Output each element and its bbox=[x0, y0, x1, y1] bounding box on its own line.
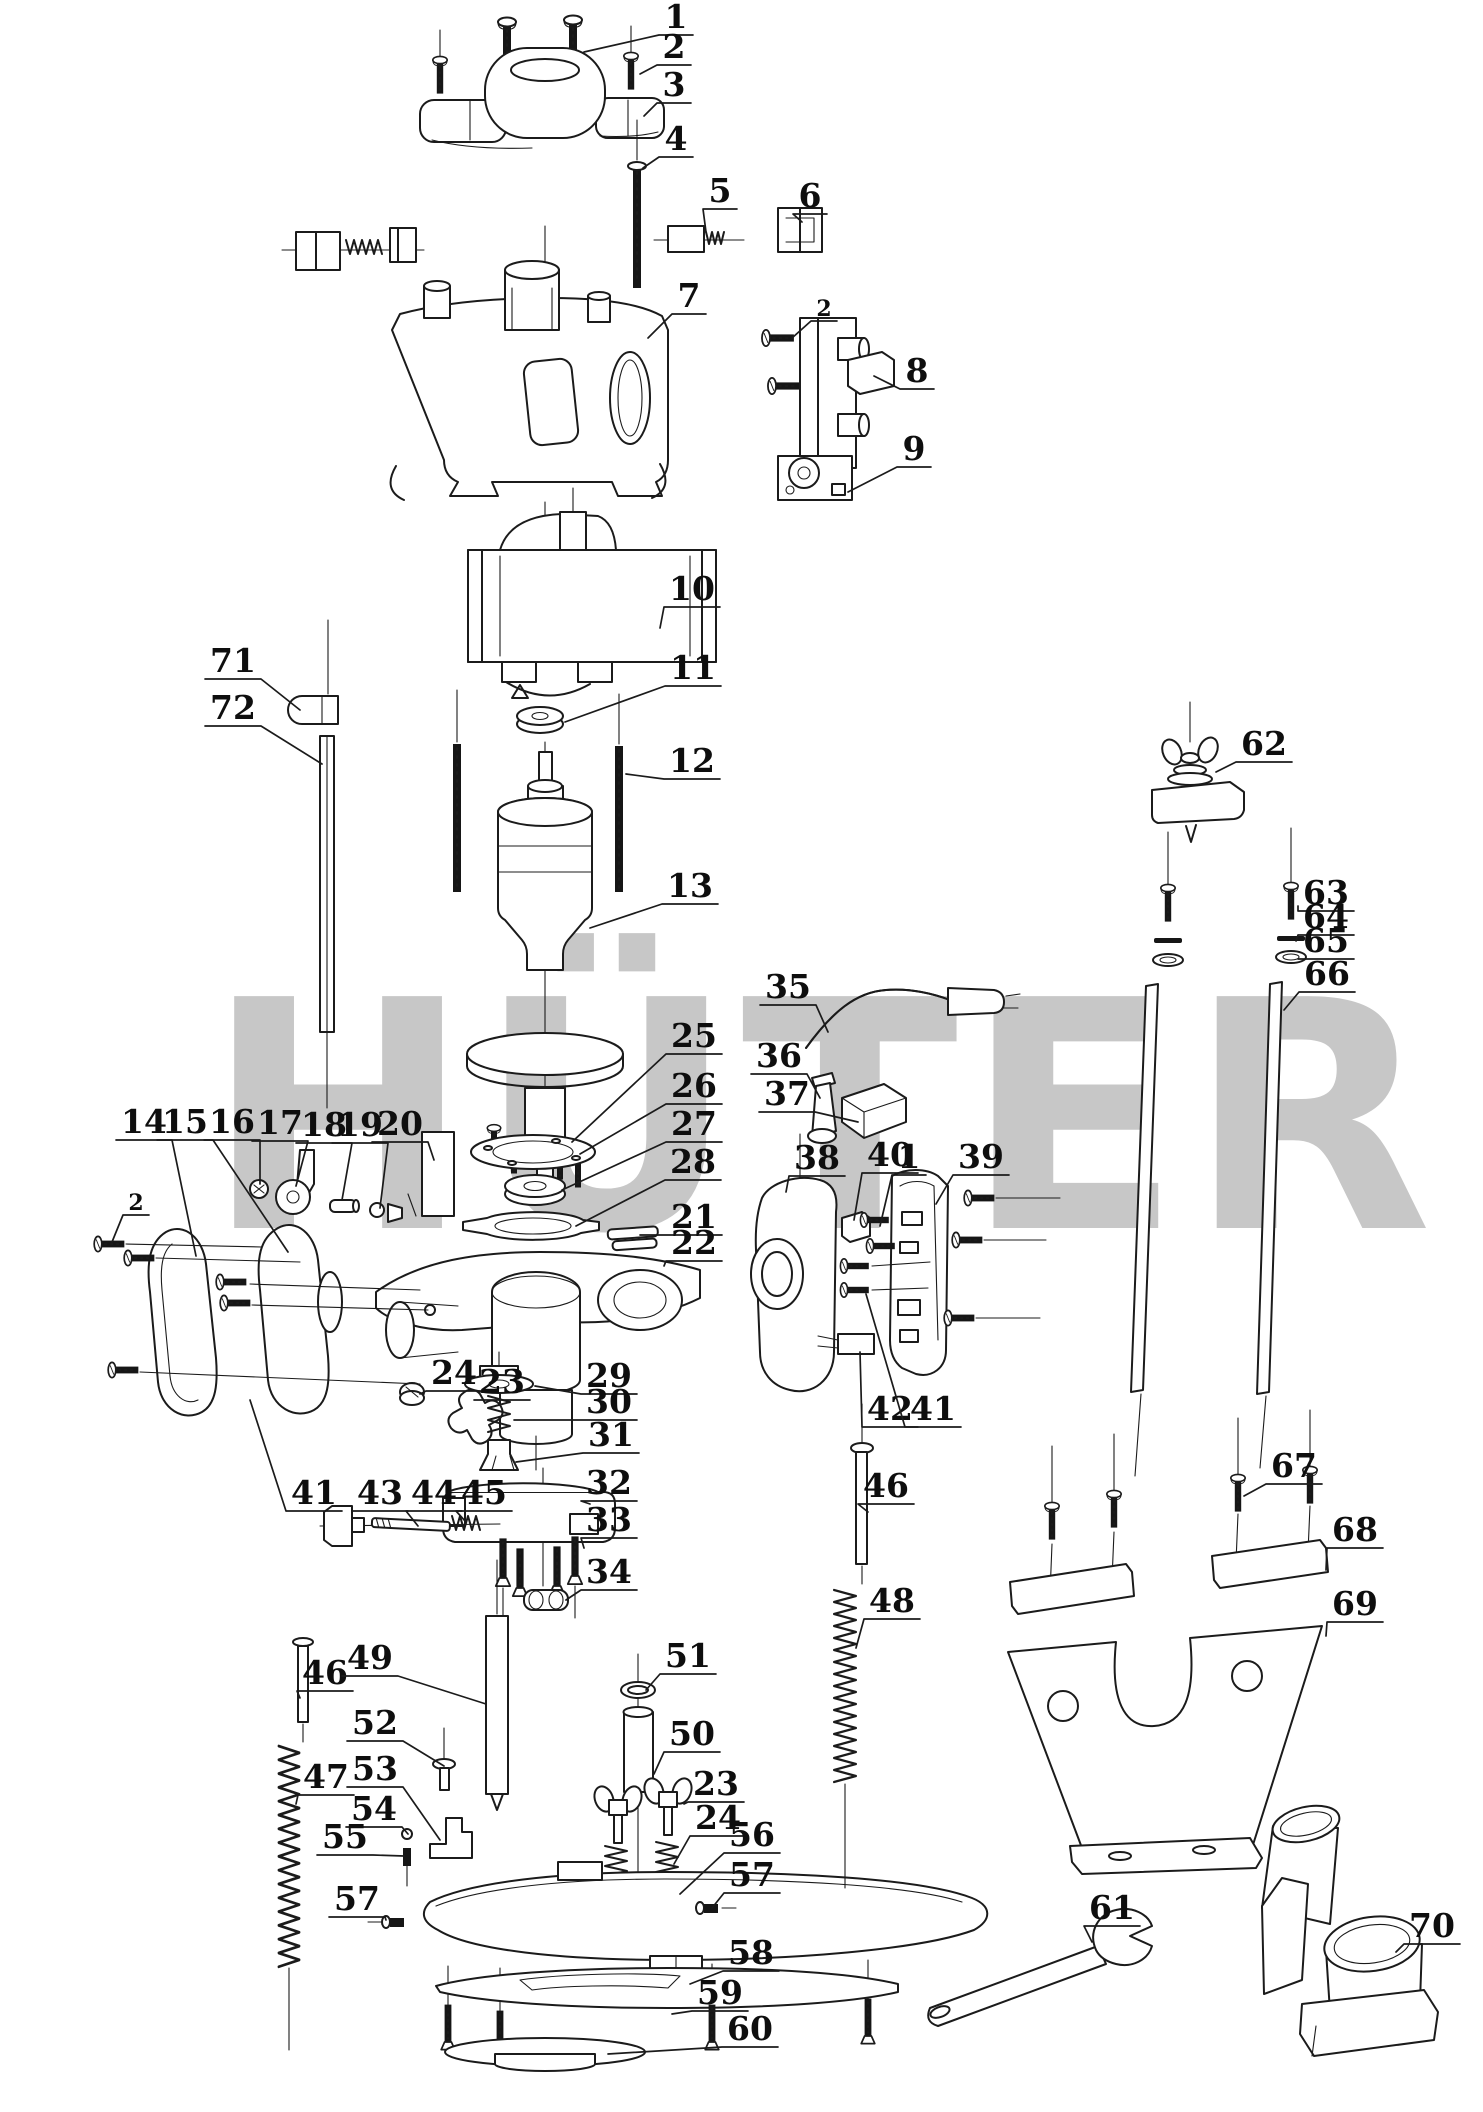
part-motor-housing-7 bbox=[391, 226, 668, 500]
part-label-1-52: 1 bbox=[898, 1137, 921, 1176]
part-label-12-12: 12 bbox=[669, 741, 715, 780]
part-label-24-38: 24 bbox=[431, 1353, 477, 1392]
part-label-3-2: 3 bbox=[663, 65, 686, 104]
part-label-4-3: 4 bbox=[665, 119, 688, 158]
part-long-screw-4 bbox=[628, 120, 646, 288]
part-label-6-5: 6 bbox=[799, 176, 822, 215]
leader-line-11-11 bbox=[565, 686, 721, 722]
leader-line-31-42 bbox=[516, 1453, 639, 1462]
part-label-46-73: 46 bbox=[863, 1466, 909, 1505]
part-label-44-48: 44 bbox=[411, 1473, 457, 1512]
part-label-48-74: 48 bbox=[869, 1581, 915, 1620]
part-label-15-31: 15 bbox=[162, 1102, 208, 1141]
part-label-51-64: 51 bbox=[665, 1636, 711, 1675]
leader-line-9-9 bbox=[848, 467, 931, 492]
part-label-62-16: 62 bbox=[1241, 724, 1287, 763]
part-label-39-53: 39 bbox=[958, 1137, 1004, 1176]
part-label-70-79: 70 bbox=[1409, 1906, 1455, 1945]
part-label-41-55: 41 bbox=[910, 1389, 956, 1428]
part-label-7-6: 7 bbox=[678, 276, 701, 315]
part-label-38-50: 38 bbox=[794, 1138, 840, 1177]
leader-line-62-16 bbox=[1216, 762, 1292, 772]
part-label-22-29: 22 bbox=[671, 1223, 717, 1262]
part-label-55-62: 55 bbox=[322, 1817, 368, 1856]
leader-line-13-13 bbox=[590, 904, 718, 928]
part-label-2-1: 2 bbox=[663, 27, 686, 66]
part-bearing-11 bbox=[517, 707, 563, 733]
part-label-2-37: 2 bbox=[128, 1190, 143, 1216]
part-label-53-60: 53 bbox=[352, 1749, 398, 1788]
part-label-34-45: 34 bbox=[586, 1552, 632, 1591]
part-label-41-46: 41 bbox=[291, 1473, 337, 1512]
leader-line-4-3 bbox=[643, 157, 693, 168]
part-spring-47 bbox=[279, 1746, 300, 2050]
leader-line-5-4 bbox=[703, 209, 737, 232]
part-guide-stop-62 bbox=[1152, 702, 1244, 842]
part-label-47-57: 47 bbox=[303, 1757, 349, 1796]
part-label-17-33: 17 bbox=[257, 1103, 303, 1142]
part-label-9-9: 9 bbox=[903, 429, 926, 468]
part-label-8-8: 8 bbox=[906, 351, 929, 390]
part-clamp-bar-21 bbox=[608, 1226, 659, 1250]
part-label-45-49: 45 bbox=[461, 1473, 507, 1512]
part-label-71-14: 71 bbox=[210, 641, 256, 680]
part-label-23-39: 23 bbox=[479, 1362, 525, 1401]
part-label-58-70: 58 bbox=[728, 1933, 774, 1972]
part-label-28-27: 28 bbox=[670, 1142, 716, 1181]
part-label-61-78: 61 bbox=[1089, 1888, 1135, 1927]
part-label-49-58: 49 bbox=[347, 1638, 393, 1677]
leader-line-48-74 bbox=[856, 1619, 920, 1648]
part-label-2-7: 2 bbox=[816, 296, 831, 322]
part-label-35-21: 35 bbox=[765, 967, 811, 1006]
part-spring-48 bbox=[834, 1590, 856, 1888]
leader-line-69-77 bbox=[1326, 1622, 1383, 1636]
part-switch-plate-8-9 bbox=[762, 318, 894, 500]
part-label-25-24: 25 bbox=[671, 1016, 717, 1055]
part-label-37-23: 37 bbox=[764, 1074, 810, 1113]
diagram-canvas: HÜTER bbox=[0, 0, 1483, 2112]
part-label-20-36: 20 bbox=[377, 1104, 423, 1143]
part-label-32-43: 32 bbox=[586, 1463, 632, 1502]
part-top-cover bbox=[420, 16, 664, 149]
part-label-57-69: 57 bbox=[729, 1855, 775, 1894]
leader-line-51-64 bbox=[646, 1674, 716, 1690]
part-label-36-22: 36 bbox=[756, 1036, 802, 1075]
part-label-67-75: 67 bbox=[1271, 1446, 1317, 1485]
leader-line-34-45 bbox=[566, 1590, 637, 1600]
part-label-66-20: 66 bbox=[1304, 954, 1350, 993]
part-label-72-15: 72 bbox=[210, 688, 256, 727]
part-brush-5 bbox=[654, 226, 744, 252]
part-brush-left bbox=[282, 228, 424, 270]
part-label-60-72: 60 bbox=[727, 2009, 773, 2048]
part-label-57-63: 57 bbox=[334, 1879, 380, 1918]
part-label-14-30: 14 bbox=[121, 1102, 167, 1141]
part-label-5-4: 5 bbox=[709, 171, 732, 210]
part-label-42-54: 42 bbox=[867, 1389, 913, 1428]
leader-line-2-37 bbox=[112, 1215, 149, 1242]
part-label-26-25: 26 bbox=[671, 1066, 717, 1105]
leader-line-47-57 bbox=[296, 1795, 354, 1804]
part-label-56-68: 56 bbox=[729, 1815, 775, 1854]
part-base-casting-22 bbox=[376, 1252, 700, 1470]
part-label-52-59: 52 bbox=[352, 1703, 398, 1742]
part-label-43-47: 43 bbox=[357, 1473, 403, 1512]
part-label-13-13: 13 bbox=[667, 866, 713, 905]
part-label-11-11: 11 bbox=[670, 648, 716, 687]
part-label-59-71: 59 bbox=[697, 1973, 743, 2012]
part-label-10-10: 10 bbox=[669, 569, 715, 608]
leader-line-68-76 bbox=[1326, 1548, 1383, 1570]
part-sole-plate-58-60 bbox=[436, 1960, 898, 2071]
part-label-50-65: 50 bbox=[669, 1714, 715, 1753]
part-label-27-26: 27 bbox=[671, 1104, 717, 1143]
leader-line-72-15 bbox=[205, 726, 322, 764]
leader-line-49-58 bbox=[342, 1676, 486, 1704]
exploded-parts-diagram-page: HÜTER bbox=[0, 0, 1483, 2112]
part-label-69-77: 69 bbox=[1332, 1584, 1378, 1623]
part-label-68-76: 68 bbox=[1332, 1510, 1378, 1549]
part-ring-51-cyl-50 bbox=[621, 1654, 655, 1888]
part-label-31-42: 31 bbox=[588, 1415, 634, 1454]
part-label-46-56: 46 bbox=[302, 1653, 348, 1692]
part-column-49 bbox=[486, 1560, 508, 1810]
part-label-16-32: 16 bbox=[209, 1102, 255, 1141]
part-label-33-44: 33 bbox=[586, 1500, 632, 1539]
